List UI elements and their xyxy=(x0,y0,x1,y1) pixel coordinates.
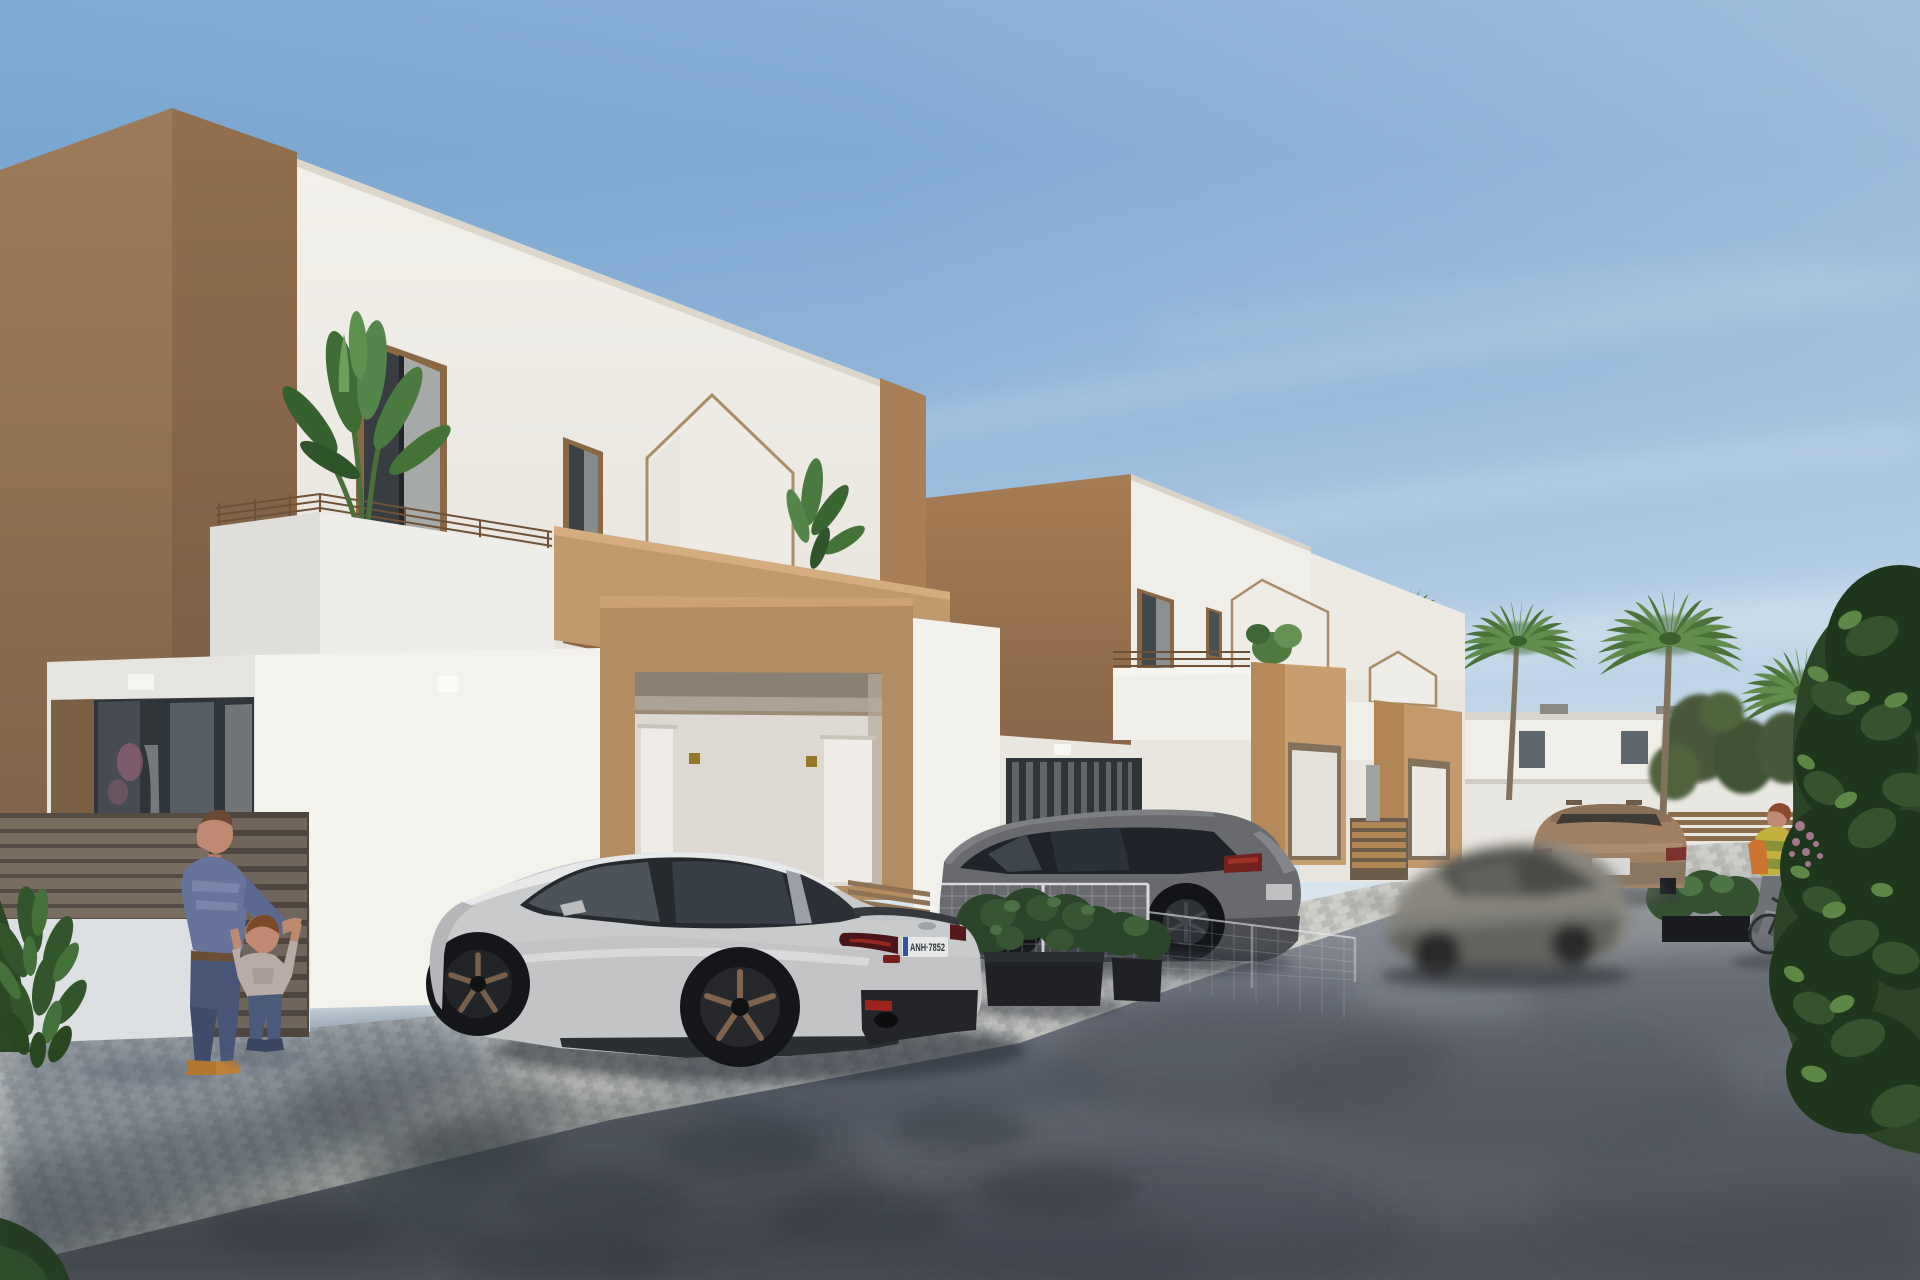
svg-text:ANH·7852: ANH·7852 xyxy=(910,942,945,954)
